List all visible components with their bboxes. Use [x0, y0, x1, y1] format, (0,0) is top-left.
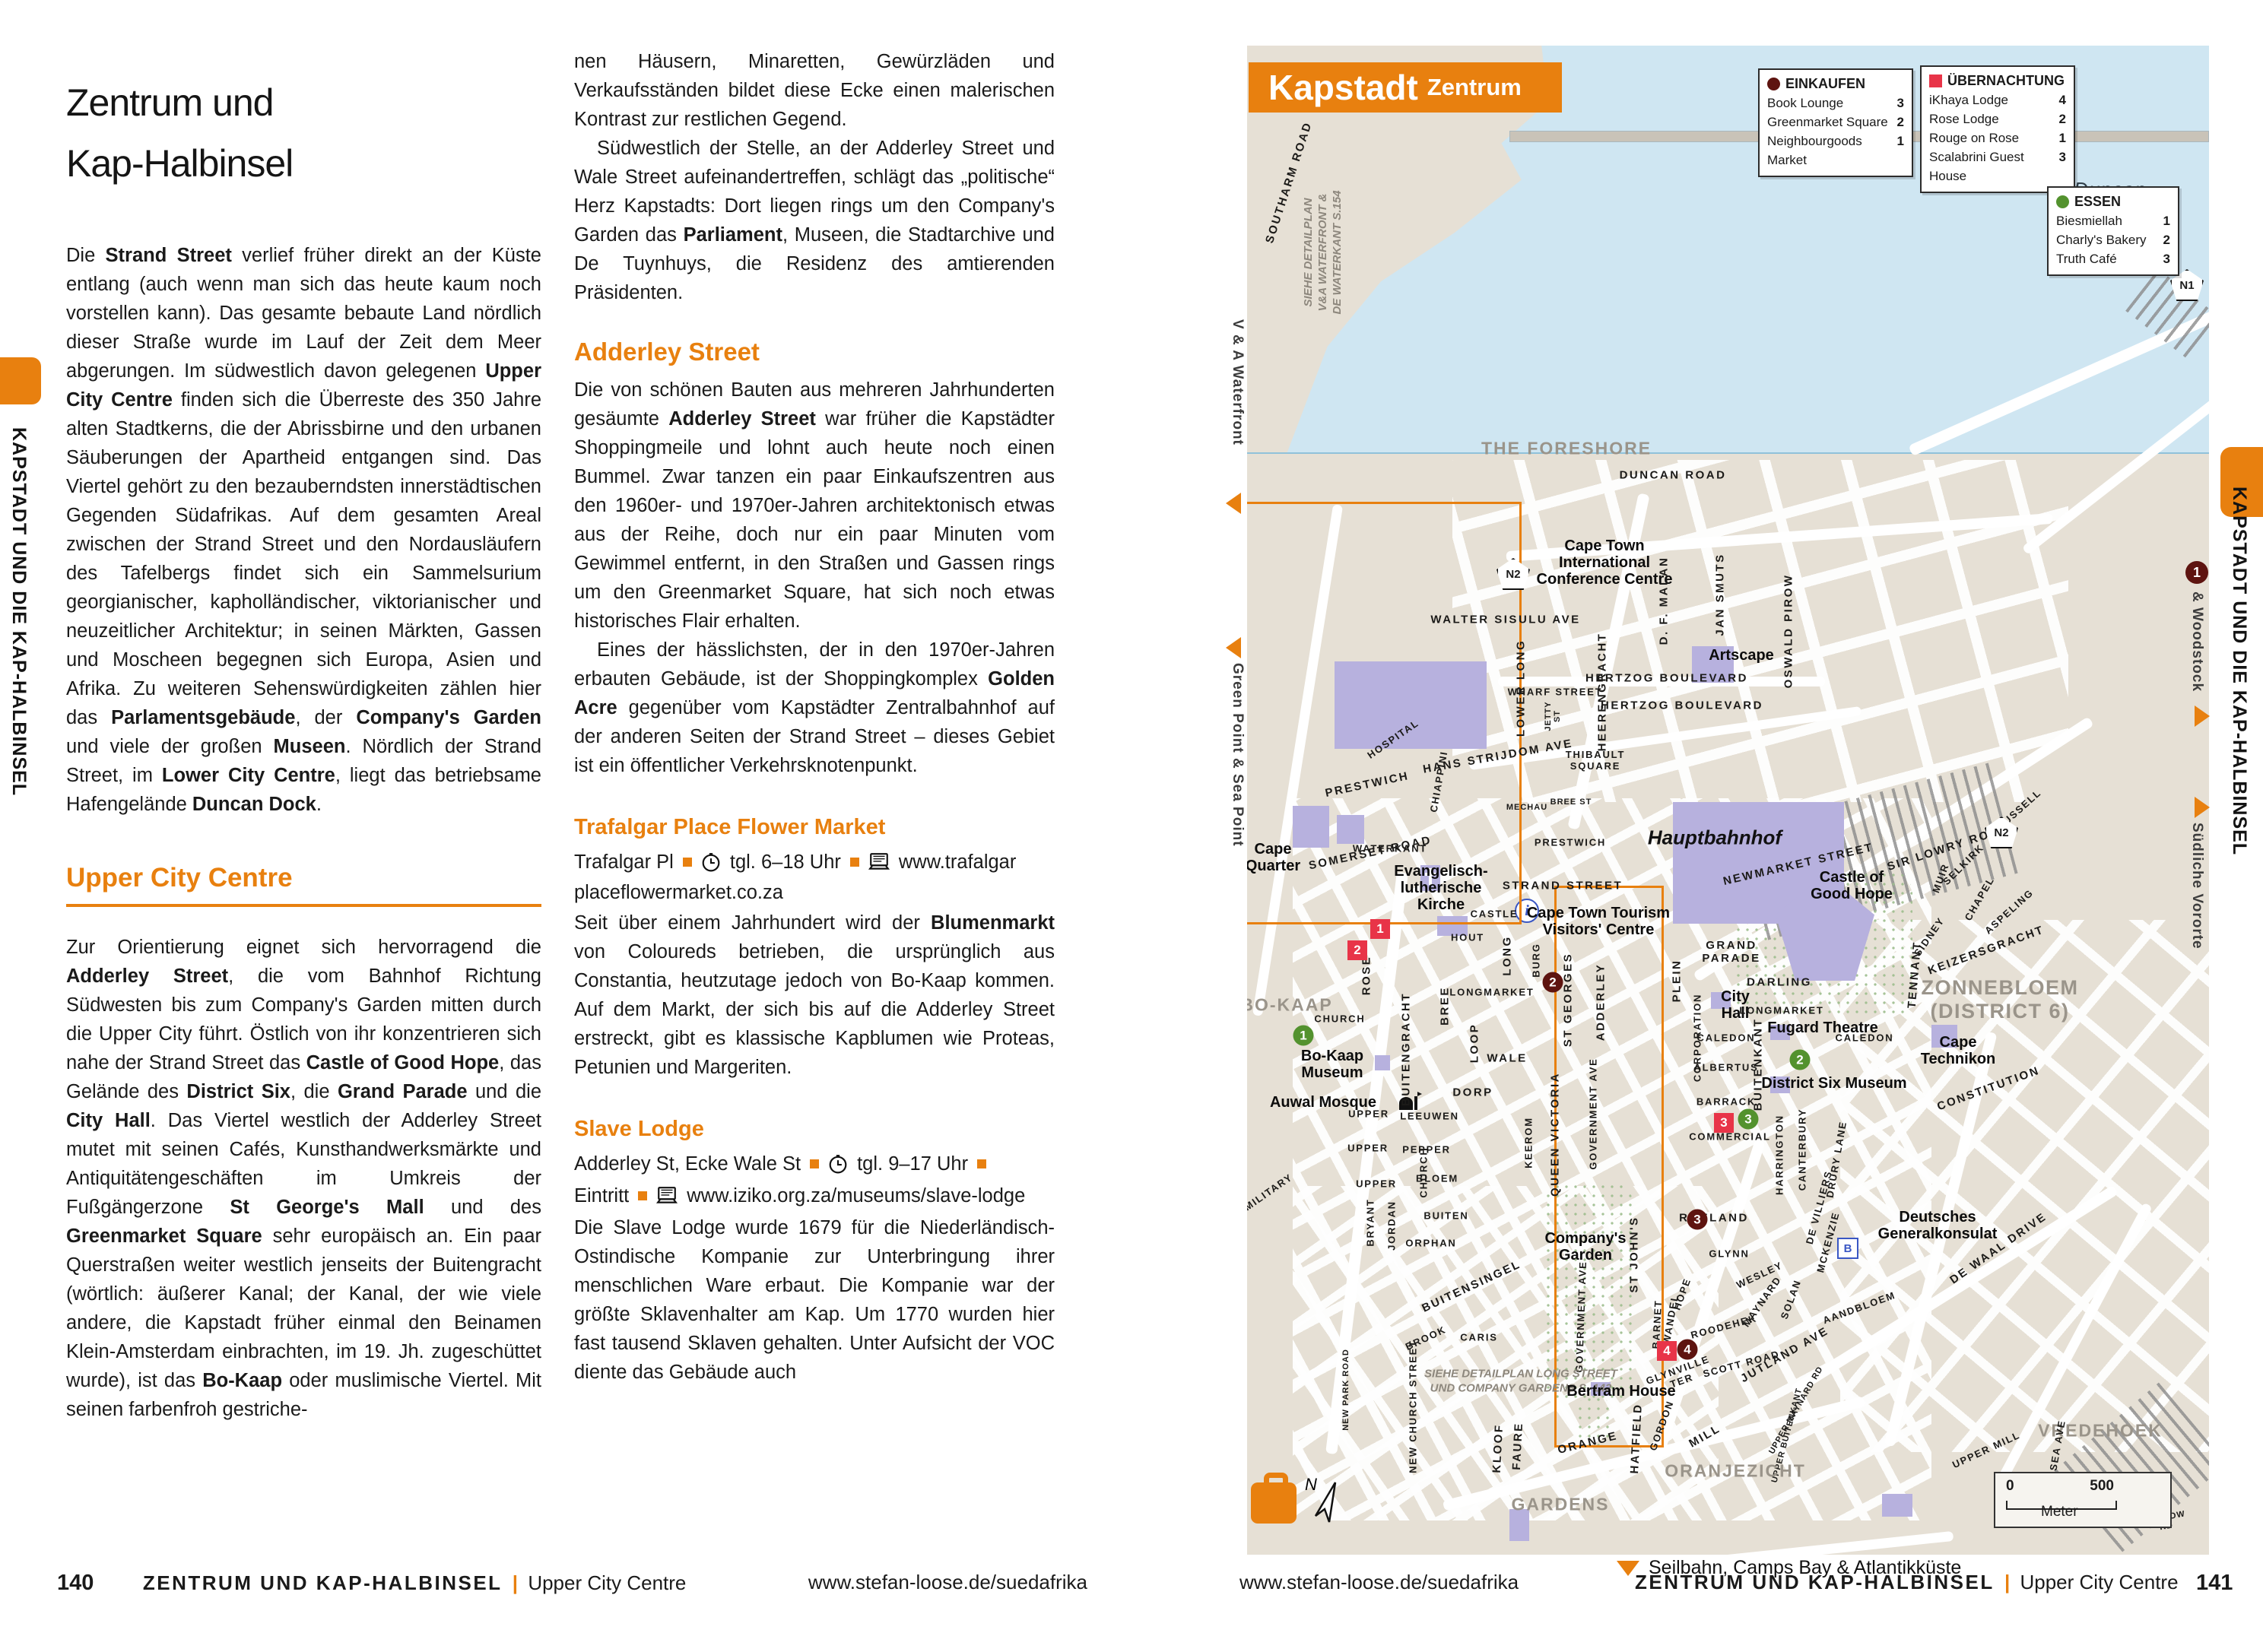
left-chapter-tab: [0, 357, 41, 404]
legend-item-number: 1: [2059, 128, 2066, 147]
legend-item-number: 4: [2059, 90, 2066, 109]
map-label: OSWALD PIROW: [1782, 574, 1795, 689]
page-title-line1: Zentrum und: [66, 72, 541, 133]
trafalgar-info-line: Trafalgar Pl tgl. 6–18 Uhr www.trafalgar: [574, 846, 1055, 878]
heading-trafalgar-market: Trafalgar Place Flower Market: [574, 815, 1055, 840]
map-marker-sq2: 2: [1347, 940, 1367, 960]
map-label: CANTERBURY: [1797, 1108, 1808, 1191]
map-marker-m3: 3: [1687, 1210, 1708, 1230]
building-block: [1882, 1494, 1912, 1517]
city-map: i B Kapstadt Zentrum SOUTHARM ROADSIEHE …: [1247, 46, 2209, 1555]
legend-item: Neighbourgoods Market1: [1767, 132, 1904, 170]
map-label: WATERKANT: [1353, 843, 1427, 855]
consulate-icon: B: [1837, 1238, 1858, 1259]
map-label: Hauptbahnhof: [1648, 826, 1782, 850]
map-label: BURG: [1531, 943, 1542, 977]
heading-slave-lodge: Slave Lodge: [574, 1117, 1055, 1142]
edge-ref-green-point: Green Point & Sea Point: [1229, 663, 1246, 847]
map-label: UPPER: [1356, 1178, 1397, 1190]
map-label: JORDAN: [1386, 1200, 1398, 1251]
upper-city-paragraph: Zur Orientierung eignet sich hervorragen…: [66, 933, 541, 1424]
map-label: FAURE: [1510, 1422, 1525, 1470]
map-label: NEW PARK ROAD: [1341, 1349, 1350, 1431]
legend-item-number: 2: [2163, 230, 2170, 249]
map-label: HERTZOG BOULEVARD: [1601, 699, 1763, 712]
footer-divider: |: [2000, 1571, 2014, 1593]
map-label: ORPHAN: [1405, 1238, 1456, 1249]
map-label: CHURCH: [1314, 1013, 1365, 1025]
legend-item-name: Charly's Bakery: [2056, 230, 2147, 249]
map-label: PRESTWICH: [1535, 837, 1606, 848]
bo-kaap-continuation: nen Häusern, Minaretten, Gewürzläden und…: [574, 47, 1055, 134]
edge-ref-southern-suburbs: Südliche Vororte: [2188, 823, 2205, 950]
page-title: Zentrum und Kap-Halbinsel: [66, 72, 541, 194]
legend-item: Scalabrini Guest House3: [1929, 147, 2066, 185]
map-label: WALE: [1487, 1052, 1527, 1065]
edge-ref-woodstock: & Woodstock: [2188, 591, 2205, 692]
left-column-2: nen Häusern, Minaretten, Gewürzläden und…: [574, 47, 1055, 1387]
clock-icon: [701, 852, 721, 872]
flower-market-paragraph: Seit über einem Jahrhundert wird der Blu…: [574, 908, 1055, 1082]
map-label: Cape Quarter: [1247, 841, 1300, 874]
building-block: [1375, 1055, 1390, 1070]
legend-item-number: 2: [1897, 113, 1904, 132]
legend-item-name: Greenmarket Square: [1767, 113, 1888, 132]
legend-item-number: 3: [2163, 249, 2170, 268]
map-label: Cape Town Tourism Visitors' Centre: [1527, 905, 1670, 938]
map-label: DORP: [1452, 1086, 1493, 1099]
map-label: THE FORESHORE: [1481, 439, 1652, 459]
legend-item-name: Biesmiellah: [2056, 211, 2122, 230]
legend-title-row: EINKAUFEN: [1767, 76, 1904, 92]
legend-item-number: 1: [1897, 132, 1904, 170]
legend-item: Rouge on Rose1: [1929, 128, 2066, 147]
map-label: THIBAULT SQUARE: [1566, 749, 1625, 772]
map-label: LONGMARKET: [1739, 1005, 1823, 1016]
map-label: Evangelisch- lutherische Kirche: [1394, 863, 1487, 913]
slave-lodge-address: Adderley St, Ecke Wale St: [574, 1148, 801, 1180]
shopping-marker-1: 1: [2185, 561, 2208, 584]
map-label: PLEIN: [1671, 959, 1684, 1003]
map-label: BREE: [1439, 986, 1452, 1026]
legend-item: iKhaya Lodge4: [1929, 90, 2066, 109]
legend-item-name: Rose Lodge: [1929, 109, 1999, 128]
map-label: WALTER SISULU AVE: [1430, 614, 1580, 626]
map-marker-m2: 2: [1543, 972, 1563, 993]
map-label: ALBERTUS: [1693, 1062, 1758, 1073]
map-label: GRAND PARADE: [1702, 939, 1760, 965]
legend-item: Biesmiellah1: [2056, 211, 2170, 230]
trafalgar-url-2: placeflowermarket.co.za: [574, 878, 1055, 907]
legend-title-row: ESSEN: [2056, 194, 2170, 210]
map-marker-sq1: 1: [1370, 919, 1390, 939]
left-footer: 140 ZENTRUM UND KAP-HALBINSEL | Upper Ci…: [57, 1571, 686, 1596]
map-marker-sq4: 4: [1657, 1341, 1677, 1361]
legend-item-name: iKhaya Lodge: [1929, 90, 2008, 109]
map-label: JETTY ST: [1544, 701, 1562, 731]
map-label: Bo-Kaap Museum: [1301, 1048, 1363, 1081]
map-marker-m4: 4: [1677, 1340, 1698, 1360]
bullet-icon: [810, 1159, 819, 1168]
slave-lodge-info-line-2: Eintritt www.iziko.org.za/museums/slave-…: [574, 1180, 1055, 1212]
map-legend-essen: ESSENBiesmiellah1Charly's Bakery2Truth C…: [2047, 186, 2179, 276]
clock-icon: [828, 1154, 848, 1174]
map-label: Cape Technikon: [1921, 1034, 1996, 1067]
map-marker-sq3: 3: [1714, 1113, 1734, 1133]
map-label: GLYNN: [1709, 1248, 1749, 1260]
left-sidebar-label: KAPSTADT UND DIE KAP-HALBINSEL: [8, 427, 30, 796]
trafalgar-url: www.trafalgar: [899, 846, 1016, 878]
book-spread: { "accent": "#e8800f", "left_page": { "s…: [0, 0, 2263, 1652]
legend-item-name: Scalabrini Guest House: [1929, 147, 2053, 185]
right-footer: ZENTRUM UND KAP-HALBINSEL | Upper City C…: [1635, 1571, 2179, 1594]
map-label: ST JOHN'S: [1628, 1216, 1641, 1292]
map-label: LONGMARKET: [1449, 987, 1534, 998]
triangle-right-icon: [2195, 706, 2210, 727]
bullet-icon: [850, 858, 859, 867]
map-label: Artscape: [1709, 647, 1774, 664]
map-label: UPPER: [1348, 1108, 1389, 1120]
scale-max: 500: [2090, 1478, 2114, 1495]
map-label: HOUT: [1451, 932, 1484, 943]
map-label: BO-KAAP: [1247, 995, 1333, 1016]
map-label: GARDENS: [1511, 1495, 1609, 1515]
map-label: CARIS: [1460, 1332, 1497, 1343]
page-number-right: 141: [2196, 1571, 2233, 1596]
map-title-bar: Kapstadt Zentrum: [1249, 62, 1562, 113]
right-footer-url: www.stefan-loose.de/suedafrika: [1239, 1571, 1519, 1594]
map-label: CALEDON: [1697, 1032, 1756, 1044]
website-icon: [656, 1186, 678, 1206]
legend-item-number: 1: [2163, 211, 2170, 230]
map-label: DUNCAN ROAD: [1620, 469, 1727, 482]
edge-ref-waterfront: V & A Waterfront: [1229, 319, 1246, 446]
bullet-icon: [683, 858, 692, 867]
map-label: ROSE: [1360, 956, 1373, 996]
legend-item: Truth Café3: [2056, 249, 2170, 268]
left-column-1: Zentrum und Kap-Halbinsel Die Strand Str…: [66, 72, 541, 1424]
legend-category-icon: [2056, 195, 2069, 208]
map-label: LONG: [1501, 935, 1514, 975]
section-heading-upper-city-centre: Upper City Centre: [66, 863, 541, 893]
map-title-sub: Zentrum: [1427, 74, 1522, 101]
slave-lodge-fee: Eintritt: [574, 1180, 629, 1212]
map-title: Kapstadt: [1268, 67, 1418, 108]
page-number-left: 140: [57, 1571, 94, 1595]
heading-rule: [66, 904, 541, 907]
map-label: QUEEN VICTORIA: [1549, 1072, 1562, 1197]
map-label: CASTLE: [1471, 908, 1519, 920]
legend-item-number: 2: [2059, 109, 2066, 128]
map-label: LOOP: [1468, 1023, 1481, 1064]
bullet-icon: [977, 1159, 986, 1168]
map-label: STRAND STREET: [1503, 880, 1623, 893]
footer-sub-right: Upper City Centre: [2020, 1571, 2178, 1593]
map-label: MECHAU: [1506, 803, 1547, 812]
map-label: NEW CHURCH STREET: [1408, 1340, 1419, 1473]
legend-item-name: Book Lounge: [1767, 94, 1843, 113]
map-label: UPPER: [1347, 1143, 1389, 1154]
left-footer-url: www.stefan-loose.de/suedafrika: [783, 1571, 1087, 1594]
map-label: District Six Museum: [1761, 1075, 1906, 1092]
scale-unit: Meter: [2041, 1504, 2078, 1520]
map-label: BRYANT: [1365, 1198, 1376, 1246]
map-label: WHARF STREET: [1508, 686, 1603, 698]
page-title-line2: Kap-Halbinsel: [66, 133, 541, 194]
map-label: BARRACK: [1696, 1096, 1756, 1108]
footer-section-left: ZENTRUM UND KAP-HALBINSEL: [143, 1571, 503, 1594]
legend-title: EINKAUFEN: [1785, 76, 1865, 92]
golden-acre-paragraph: Eines der hässlichsten, der in den 1970e…: [574, 636, 1055, 780]
legend-item: Rose Lodge2: [1929, 109, 2066, 128]
bullet-icon: [638, 1191, 647, 1200]
north-arrow-icon: N: [1302, 1473, 1347, 1527]
map-label: SIEHE DETAILPLAN V&A WATERFRONT & DE WAT…: [1302, 190, 1344, 314]
legend-item: Greenmarket Square2: [1767, 113, 1904, 132]
website-icon: [868, 852, 890, 872]
triangle-right-icon: [2195, 797, 2210, 818]
map-label: ST GEORGES: [1562, 953, 1575, 1047]
map-label: Company's Garden: [1544, 1230, 1626, 1264]
footer-divider: |: [508, 1571, 522, 1594]
map-label: CALEDON: [1836, 1032, 1894, 1044]
adderley-paragraph: Die von schönen Bauten aus mehreren Jahr…: [574, 376, 1055, 636]
map-label: KLOOF: [1490, 1423, 1506, 1473]
trafalgar-address: Trafalgar Pl: [574, 846, 674, 878]
map-label: GOVERNMENT AVE: [1588, 1057, 1599, 1169]
legend-category-icon: [1767, 78, 1780, 90]
map-label: HERTZOG BOULEVARD: [1585, 672, 1748, 685]
legend-item-name: Truth Café: [2056, 249, 2117, 268]
right-sidebar-label: KAPSTADT UND DIE KAP-HALBINSEL: [2228, 487, 2250, 855]
politics-paragraph: Südwestlich der Stelle, an der Adderley …: [574, 134, 1055, 307]
map-label: KEEROM: [1523, 1117, 1535, 1168]
suitcase-icon: [1251, 1482, 1297, 1524]
legend-item-number: 3: [1897, 94, 1904, 113]
triangle-left-icon: [1226, 493, 1241, 514]
map-label: Deutsches Generalkonsulat: [1878, 1209, 1998, 1242]
slave-lodge-info-line-1: Adderley St, Ecke Wale St tgl. 9–17 Uhr: [574, 1148, 1055, 1180]
map-label: MILITARY: [1247, 1172, 1295, 1213]
legend-item-number: 3: [2059, 147, 2066, 185]
map-label: D. F. MALAN: [1658, 556, 1671, 645]
map-label: HARRINGTON: [1774, 1115, 1785, 1195]
intro-paragraph: Die Strand Street verlief früher direkt …: [66, 241, 541, 819]
map-label: Castle of Good Hope: [1811, 869, 1893, 902]
trafalgar-hours: tgl. 6–18 Uhr: [730, 846, 841, 878]
map-label: BREE ST: [1550, 797, 1592, 807]
map-scale-bar: 0 500 Meter: [1994, 1472, 2172, 1528]
legend-title-row: ÜBERNACHTUNG: [1929, 73, 2066, 89]
legend-item: Charly's Bakery2: [2056, 230, 2170, 249]
map-marker-g1: 1: [1293, 1026, 1314, 1046]
map-marker-g3: 3: [1738, 1109, 1759, 1130]
footer-section-right: ZENTRUM UND KAP-HALBINSEL: [1635, 1571, 1995, 1593]
scale-zero: 0: [2006, 1478, 2014, 1495]
map-road: [1575, 1531, 1954, 1555]
map-label: ORANJEZICHT: [1665, 1461, 1806, 1482]
map-legend-einkaufen: EINKAUFENBook Lounge3Greenmarket Square2…: [1758, 68, 1913, 177]
map-legend-übernachtung: ÜBERNACHTUNGiKhaya Lodge4Rose Lodge2Roug…: [1920, 65, 2075, 193]
map-marker-g2: 2: [1790, 1050, 1811, 1070]
legend-item-name: Rouge on Rose: [1929, 128, 2019, 147]
legend-item: Book Lounge3: [1767, 94, 1904, 113]
legend-item-name: Neighbourgoods Market: [1767, 132, 1891, 170]
footer-sub-left: Upper City Centre: [528, 1571, 686, 1594]
legend-category-icon: [1929, 75, 1942, 87]
triangle-left-icon: [1226, 637, 1241, 658]
map-label: LEEUWEN: [1400, 1111, 1459, 1122]
svg-text:N: N: [1305, 1475, 1317, 1494]
map-label: Bertram House: [1566, 1383, 1675, 1400]
slave-lodge-paragraph: Die Slave Lodge wurde 1679 für die Niede…: [574, 1213, 1055, 1387]
slave-lodge-hours: tgl. 9–17 Uhr: [857, 1148, 968, 1180]
map-label: BUITEN: [1423, 1210, 1468, 1222]
map-label: DARLING: [1747, 976, 1812, 989]
legend-title: ÜBERNACHTUNG: [1947, 73, 2065, 89]
slave-lodge-url: www.iziko.org.za/museums/slave-lodge: [687, 1180, 1025, 1212]
map-label: ADDERLEY: [1595, 963, 1608, 1042]
heading-adderley-street: Adderley Street: [574, 338, 1055, 366]
map-label: Cape Town International Conference Centr…: [1537, 537, 1673, 588]
legend-title: ESSEN: [2074, 194, 2121, 210]
map-label: ZONNEBLOEM (DISTRICT 6): [1922, 976, 2079, 1023]
map-label: BUITENGRACHT: [1400, 992, 1413, 1106]
map-label: JAN SMUTS: [1714, 553, 1727, 636]
map-label: CHURCH: [1418, 1146, 1430, 1197]
map-label: HEERENGRACHT: [1596, 633, 1609, 752]
